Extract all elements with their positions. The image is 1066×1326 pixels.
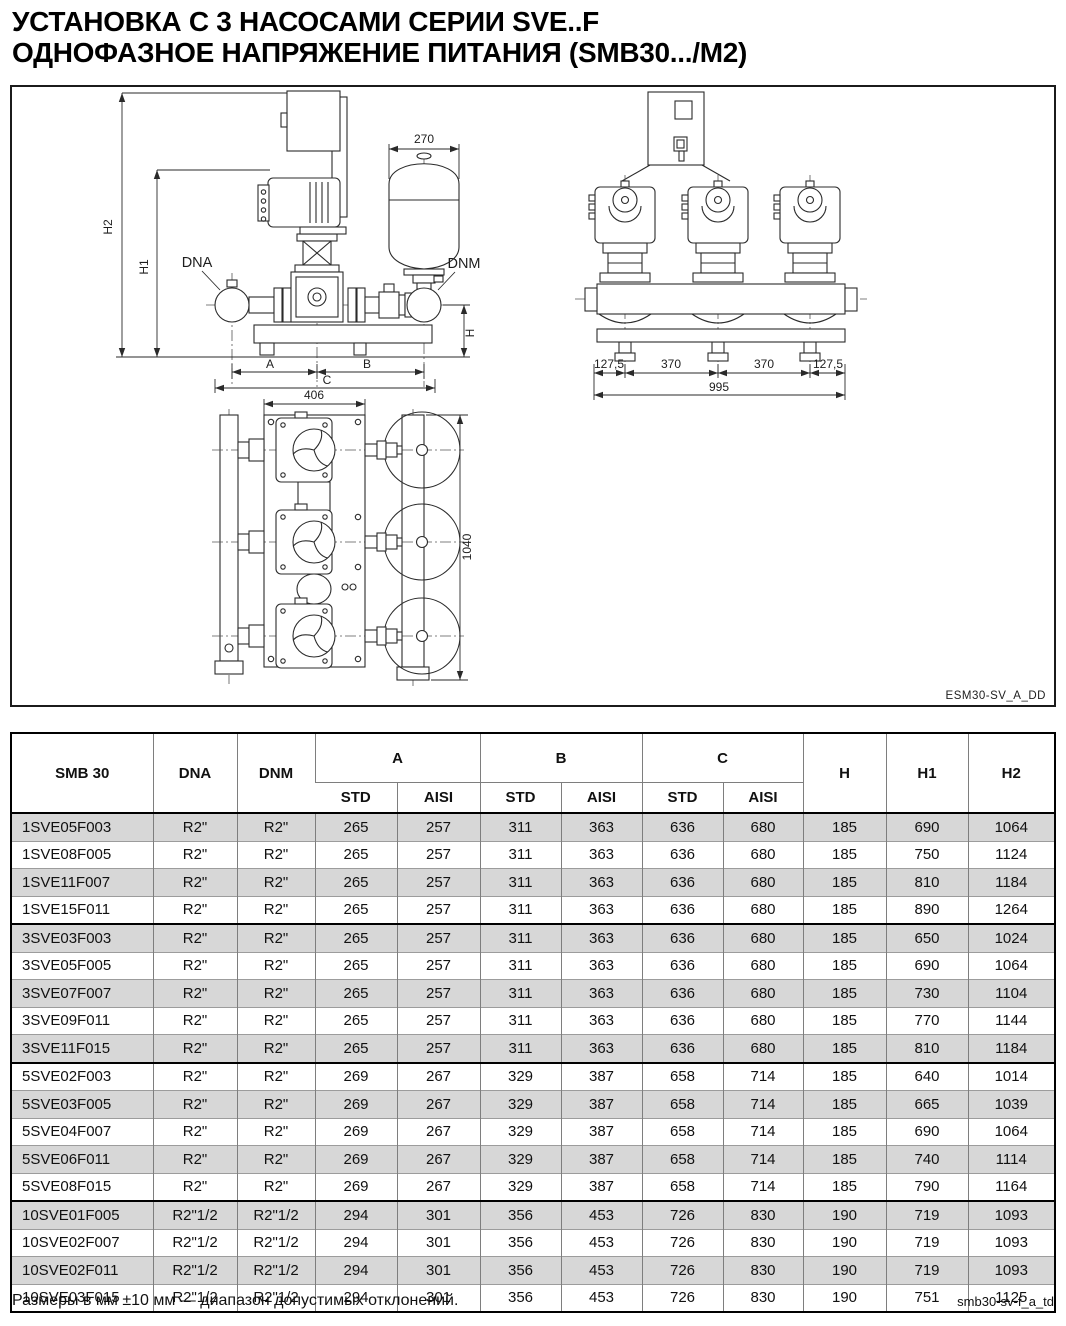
cell-c_aisi: 680 xyxy=(723,841,803,869)
cell-h: 185 xyxy=(803,841,886,869)
cell-a_std: 265 xyxy=(315,924,397,952)
cell-h2: 1264 xyxy=(968,896,1055,924)
cell-h2: 1104 xyxy=(968,980,1055,1008)
cell-h1: 719 xyxy=(886,1201,968,1229)
cell-dnm: R2" xyxy=(237,924,315,952)
cell-h: 185 xyxy=(803,952,886,980)
cell-c_std: 636 xyxy=(642,952,723,980)
table-row: 5SVE06F011R2"R2"269267329387658714185740… xyxy=(11,1146,1055,1174)
cell-b_aisi: 453 xyxy=(561,1201,642,1229)
cell-c_std: 658 xyxy=(642,1118,723,1146)
cell-h2: 1124 xyxy=(968,841,1055,869)
cell-h: 185 xyxy=(803,1146,886,1174)
cell-c_std: 636 xyxy=(642,813,723,841)
cell-h2: 1039 xyxy=(968,1091,1055,1119)
cell-h2: 1064 xyxy=(968,813,1055,841)
cell-a_std: 265 xyxy=(315,980,397,1008)
cell-c_std: 636 xyxy=(642,896,723,924)
cell-a_std: 265 xyxy=(315,896,397,924)
cell-h1: 665 xyxy=(886,1091,968,1119)
cell-dna: R2" xyxy=(153,980,237,1008)
cell-dna: R2"1/2 xyxy=(153,1257,237,1285)
cell-h1: 810 xyxy=(886,869,968,897)
cell-c_aisi: 714 xyxy=(723,1173,803,1201)
dim-406: 406 xyxy=(304,388,324,402)
dim-span2: 370 xyxy=(754,357,774,371)
cell-b_std: 311 xyxy=(480,924,561,952)
cell-c_aisi: 714 xyxy=(723,1063,803,1091)
cell-c_aisi: 680 xyxy=(723,1007,803,1035)
cell-a_aisi: 301 xyxy=(397,1201,480,1229)
cell-h1: 770 xyxy=(886,1007,968,1035)
cell-c_std: 636 xyxy=(642,869,723,897)
cell-dnm: R2" xyxy=(237,869,315,897)
cell-a_std: 265 xyxy=(315,869,397,897)
cell-c_aisi: 680 xyxy=(723,813,803,841)
cell-dnm: R2" xyxy=(237,1118,315,1146)
table-row: 5SVE04F007R2"R2"269267329387658714185690… xyxy=(11,1118,1055,1146)
dimension-table: SMB 30 DNA DNM A B C H H1 H2 STD AISI ST… xyxy=(10,732,1056,1313)
cell-a_std: 265 xyxy=(315,813,397,841)
cell-h1: 690 xyxy=(886,952,968,980)
cell-c_std: 726 xyxy=(642,1229,723,1257)
cell-h: 185 xyxy=(803,1118,886,1146)
dim-edge-right: 127,5 xyxy=(813,357,843,371)
cell-model: 10SVE02F007 xyxy=(11,1229,153,1257)
cell-c_std: 658 xyxy=(642,1063,723,1091)
cell-h: 185 xyxy=(803,869,886,897)
cell-dnm: R2"1/2 xyxy=(237,1229,315,1257)
cell-h1: 640 xyxy=(886,1063,968,1091)
cell-h: 185 xyxy=(803,813,886,841)
cell-b_aisi: 453 xyxy=(561,1257,642,1285)
cell-b_aisi: 363 xyxy=(561,980,642,1008)
cell-model: 3SVE09F011 xyxy=(11,1007,153,1035)
cell-dnm: R2" xyxy=(237,1146,315,1174)
cell-model: 5SVE03F005 xyxy=(11,1091,153,1119)
cell-c_aisi: 830 xyxy=(723,1229,803,1257)
cell-h1: 890 xyxy=(886,896,968,924)
table-row: 5SVE02F003R2"R2"269267329387658714185640… xyxy=(11,1063,1055,1091)
cell-h: 185 xyxy=(803,1007,886,1035)
cell-a_aisi: 267 xyxy=(397,1173,480,1201)
cell-dnm: R2" xyxy=(237,980,315,1008)
cell-b_std: 356 xyxy=(480,1257,561,1285)
cell-dnm: R2" xyxy=(237,841,315,869)
cell-c_aisi: 714 xyxy=(723,1091,803,1119)
cell-h: 190 xyxy=(803,1284,886,1312)
cell-model: 5SVE02F003 xyxy=(11,1063,153,1091)
cell-c_aisi: 830 xyxy=(723,1284,803,1312)
col-header-dna: DNA xyxy=(153,733,237,813)
cell-h2: 1114 xyxy=(968,1146,1055,1174)
cell-dnm: R2"1/2 xyxy=(237,1201,315,1229)
subheader-a-std: STD xyxy=(315,783,397,814)
subheader-b-aisi: AISI xyxy=(561,783,642,814)
cell-c_aisi: 680 xyxy=(723,980,803,1008)
cell-a_aisi: 267 xyxy=(397,1146,480,1174)
cell-dna: R2" xyxy=(153,841,237,869)
cell-a_std: 294 xyxy=(315,1201,397,1229)
cell-dna: R2" xyxy=(153,1146,237,1174)
cell-h1: 719 xyxy=(886,1257,968,1285)
cell-model: 3SVE03F003 xyxy=(11,924,153,952)
cell-c_std: 726 xyxy=(642,1257,723,1285)
cell-model: 3SVE05F005 xyxy=(11,952,153,980)
cell-model: 5SVE04F007 xyxy=(11,1118,153,1146)
cell-b_std: 329 xyxy=(480,1063,561,1091)
cell-b_aisi: 387 xyxy=(561,1173,642,1201)
drawing-code: ESM30-SV_A_DD xyxy=(946,690,1046,702)
cell-c_std: 658 xyxy=(642,1173,723,1201)
cell-model: 1SVE11F007 xyxy=(11,869,153,897)
cell-b_std: 311 xyxy=(480,841,561,869)
subheader-a-aisi: AISI xyxy=(397,783,480,814)
cell-c_aisi: 714 xyxy=(723,1146,803,1174)
subheader-c-aisi: AISI xyxy=(723,783,803,814)
cell-h: 185 xyxy=(803,980,886,1008)
cell-c_std: 636 xyxy=(642,1035,723,1063)
cell-model: 5SVE08F015 xyxy=(11,1173,153,1201)
cell-a_aisi: 257 xyxy=(397,980,480,1008)
cell-b_std: 311 xyxy=(480,869,561,897)
cell-h: 185 xyxy=(803,1035,886,1063)
cell-b_std: 311 xyxy=(480,1007,561,1035)
cell-b_aisi: 387 xyxy=(561,1118,642,1146)
table-body: 1SVE05F003R2"R2"265257311363636680185690… xyxy=(11,813,1055,1312)
cell-dna: R2" xyxy=(153,1007,237,1035)
page-title-line1: УСТАНОВКА С 3 НАСОСАМИ СЕРИИ SVE..F xyxy=(12,6,747,37)
cell-b_aisi: 363 xyxy=(561,813,642,841)
cell-model: 1SVE08F005 xyxy=(11,841,153,869)
cell-h: 190 xyxy=(803,1229,886,1257)
cell-h: 185 xyxy=(803,924,886,952)
cell-h2: 1144 xyxy=(968,1007,1055,1035)
table-row: 3SVE09F011R2"R2"265257311363636680185770… xyxy=(11,1007,1055,1035)
cell-h1: 730 xyxy=(886,980,968,1008)
cell-h: 185 xyxy=(803,1091,886,1119)
cell-a_aisi: 257 xyxy=(397,841,480,869)
cell-dna: R2" xyxy=(153,1118,237,1146)
col-header-dnm: DNM xyxy=(237,733,315,813)
cell-h: 185 xyxy=(803,1173,886,1201)
cell-h1: 650 xyxy=(886,924,968,952)
dim-270: 270 xyxy=(414,132,434,146)
cell-h2: 1184 xyxy=(968,869,1055,897)
cell-h1: 810 xyxy=(886,1035,968,1063)
cell-h2: 1093 xyxy=(968,1201,1055,1229)
cell-a_std: 265 xyxy=(315,1007,397,1035)
table-row: 1SVE05F003R2"R2"265257311363636680185690… xyxy=(11,813,1055,841)
cell-b_std: 311 xyxy=(480,896,561,924)
table-row: 3SVE07F007R2"R2"265257311363636680185730… xyxy=(11,980,1055,1008)
table-row: 10SVE02F007R2"1/2R2"1/229430135645372683… xyxy=(11,1229,1055,1257)
cell-a_aisi: 257 xyxy=(397,813,480,841)
cell-h: 185 xyxy=(803,1063,886,1091)
cell-dnm: R2" xyxy=(237,813,315,841)
cell-h1: 740 xyxy=(886,1146,968,1174)
cell-dnm: R2" xyxy=(237,1007,315,1035)
col-header-b: B xyxy=(480,733,642,783)
cell-model: 1SVE15F011 xyxy=(11,896,153,924)
cell-c_aisi: 714 xyxy=(723,1118,803,1146)
table-row: 3SVE03F003R2"R2"265257311363636680185650… xyxy=(11,924,1055,952)
cell-a_std: 269 xyxy=(315,1091,397,1119)
cell-model: 3SVE07F007 xyxy=(11,980,153,1008)
cell-c_aisi: 680 xyxy=(723,952,803,980)
cell-c_std: 726 xyxy=(642,1284,723,1312)
cell-a_aisi: 267 xyxy=(397,1091,480,1119)
cell-c_std: 658 xyxy=(642,1091,723,1119)
subheader-b-std: STD xyxy=(480,783,561,814)
plan-view: 406 1040 xyxy=(212,388,474,687)
cell-b_std: 311 xyxy=(480,952,561,980)
cell-a_std: 269 xyxy=(315,1118,397,1146)
cell-c_std: 726 xyxy=(642,1201,723,1229)
cell-b_std: 356 xyxy=(480,1201,561,1229)
cell-dnm: R2" xyxy=(237,1063,315,1091)
table-row: 10SVE01F005R2"1/2R2"1/229430135645372683… xyxy=(11,1201,1055,1229)
col-header-h: H xyxy=(803,733,886,813)
cell-a_std: 269 xyxy=(315,1063,397,1091)
cell-h: 190 xyxy=(803,1257,886,1285)
cell-a_aisi: 257 xyxy=(397,952,480,980)
cell-b_aisi: 363 xyxy=(561,869,642,897)
cell-dna: R2" xyxy=(153,1091,237,1119)
cell-model: 10SVE01F005 xyxy=(11,1201,153,1229)
cell-c_aisi: 830 xyxy=(723,1257,803,1285)
cell-b_aisi: 363 xyxy=(561,1035,642,1063)
cell-c_aisi: 680 xyxy=(723,896,803,924)
cell-h2: 1093 xyxy=(968,1229,1055,1257)
cell-c_aisi: 680 xyxy=(723,924,803,952)
cell-model: 1SVE05F003 xyxy=(11,813,153,841)
dim-1040: 1040 xyxy=(460,533,474,560)
table-row: 1SVE08F005R2"R2"265257311363636680185750… xyxy=(11,841,1055,869)
cell-dna: R2" xyxy=(153,813,237,841)
col-header-h2: H2 xyxy=(968,733,1055,813)
cell-h2: 1184 xyxy=(968,1035,1055,1063)
cell-a_std: 294 xyxy=(315,1257,397,1285)
cell-dna: R2" xyxy=(153,1173,237,1201)
table-row: 10SVE02F011R2"1/2R2"1/229430135645372683… xyxy=(11,1257,1055,1285)
dim-edge-left: 127,5 xyxy=(594,357,624,371)
cell-c_aisi: 830 xyxy=(723,1201,803,1229)
col-header-a: A xyxy=(315,733,480,783)
table-row: 3SVE05F005R2"R2"265257311363636680185690… xyxy=(11,952,1055,980)
cell-b_std: 329 xyxy=(480,1091,561,1119)
cell-c_aisi: 680 xyxy=(723,1035,803,1063)
technical-drawing: DNA DNM H2 H1 270 H A B C xyxy=(10,85,1056,707)
cell-model: 5SVE06F011 xyxy=(11,1146,153,1174)
cell-h1: 690 xyxy=(886,1118,968,1146)
footer-code: smb30-sv-f_a_td xyxy=(957,1294,1054,1309)
cell-dna: R2"1/2 xyxy=(153,1229,237,1257)
col-header-h1: H1 xyxy=(886,733,968,813)
dim-total: 995 xyxy=(709,380,729,394)
cell-a_aisi: 267 xyxy=(397,1118,480,1146)
cell-a_std: 269 xyxy=(315,1146,397,1174)
cell-dnm: R2" xyxy=(237,1035,315,1063)
cell-dnm: R2" xyxy=(237,952,315,980)
front-view: DNA DNM H2 H1 270 H A B C xyxy=(101,91,481,393)
cell-dna: R2" xyxy=(153,952,237,980)
cell-b_std: 311 xyxy=(480,813,561,841)
page-title-line2: ОДНОФАЗНОЕ НАПРЯЖЕНИЕ ПИТАНИЯ (SMB30.../… xyxy=(12,37,747,68)
cell-b_aisi: 363 xyxy=(561,924,642,952)
col-header-model: SMB 30 xyxy=(11,733,153,813)
cell-b_aisi: 387 xyxy=(561,1146,642,1174)
cell-b_std: 329 xyxy=(480,1146,561,1174)
cell-a_aisi: 257 xyxy=(397,869,480,897)
cell-h: 190 xyxy=(803,1201,886,1229)
drawing-svg: DNA DNM H2 H1 270 H A B C xyxy=(12,87,1054,705)
table-row: 5SVE08F015R2"R2"269267329387658714185790… xyxy=(11,1173,1055,1201)
cell-a_std: 265 xyxy=(315,1035,397,1063)
cell-a_aisi: 267 xyxy=(397,1063,480,1091)
dim-a: A xyxy=(266,357,274,371)
cell-b_std: 356 xyxy=(480,1284,561,1312)
table-row: 5SVE03F005R2"R2"269267329387658714185665… xyxy=(11,1091,1055,1119)
cell-c_std: 636 xyxy=(642,1007,723,1035)
dim-span1: 370 xyxy=(661,357,681,371)
cell-h1: 751 xyxy=(886,1284,968,1312)
cell-b_aisi: 387 xyxy=(561,1091,642,1119)
dim-c: C xyxy=(323,373,332,387)
cell-h: 185 xyxy=(803,896,886,924)
cell-h2: 1024 xyxy=(968,924,1055,952)
cell-dna: R2"1/2 xyxy=(153,1201,237,1229)
cell-model: 10SVE02F011 xyxy=(11,1257,153,1285)
cell-a_std: 294 xyxy=(315,1229,397,1257)
cell-dnm: R2"1/2 xyxy=(237,1257,315,1285)
cell-b_std: 329 xyxy=(480,1173,561,1201)
cell-h2: 1064 xyxy=(968,952,1055,980)
cell-b_aisi: 453 xyxy=(561,1284,642,1312)
cell-c_std: 636 xyxy=(642,980,723,1008)
cell-a_aisi: 301 xyxy=(397,1229,480,1257)
side-view: 127,5 370 370 127,5 995 xyxy=(575,92,867,400)
cell-dnm: R2" xyxy=(237,1091,315,1119)
cell-h2: 1014 xyxy=(968,1063,1055,1091)
cell-a_aisi: 301 xyxy=(397,1257,480,1285)
cell-h1: 750 xyxy=(886,841,968,869)
cell-b_aisi: 363 xyxy=(561,1007,642,1035)
cell-b_std: 311 xyxy=(480,980,561,1008)
datasheet-page: { "page": { "title_line1": "УСТАНОВКА С … xyxy=(0,0,1066,1326)
cell-dna: R2" xyxy=(153,1035,237,1063)
cell-dna: R2" xyxy=(153,896,237,924)
cell-b_std: 329 xyxy=(480,1118,561,1146)
cell-a_aisi: 257 xyxy=(397,1007,480,1035)
page-title: УСТАНОВКА С 3 НАСОСАМИ СЕРИИ SVE..F ОДНО… xyxy=(12,6,747,68)
cell-b_std: 311 xyxy=(480,1035,561,1063)
cell-a_aisi: 257 xyxy=(397,1035,480,1063)
table-row: 1SVE15F011R2"R2"265257311363636680185890… xyxy=(11,896,1055,924)
cell-h2: 1093 xyxy=(968,1257,1055,1285)
cell-c_std: 636 xyxy=(642,924,723,952)
cell-a_std: 265 xyxy=(315,841,397,869)
cell-a_std: 265 xyxy=(315,952,397,980)
table-row: 1SVE11F007R2"R2"265257311363636680185810… xyxy=(11,869,1055,897)
spec-table: SMB 30 DNA DNM A B C H H1 H2 STD AISI ST… xyxy=(10,732,1056,1313)
cell-dna: R2" xyxy=(153,869,237,897)
cell-dna: R2" xyxy=(153,1063,237,1091)
cell-h2: 1064 xyxy=(968,1118,1055,1146)
cell-dnm: R2" xyxy=(237,1173,315,1201)
cell-b_aisi: 363 xyxy=(561,952,642,980)
cell-h1: 790 xyxy=(886,1173,968,1201)
col-header-c: C xyxy=(642,733,803,783)
label-dnm: DNM xyxy=(447,256,480,272)
cell-b_aisi: 387 xyxy=(561,1063,642,1091)
dim-h1: H1 xyxy=(137,259,151,275)
label-dna: DNA xyxy=(182,255,213,271)
cell-dnm: R2" xyxy=(237,896,315,924)
cell-h1: 719 xyxy=(886,1229,968,1257)
cell-h2: 1164 xyxy=(968,1173,1055,1201)
cell-model: 3SVE11F015 xyxy=(11,1035,153,1063)
cell-b_aisi: 453 xyxy=(561,1229,642,1257)
subheader-c-std: STD xyxy=(642,783,723,814)
dim-b: B xyxy=(363,357,371,371)
dim-h: H xyxy=(463,329,477,338)
table-row: 3SVE11F015R2"R2"265257311363636680185810… xyxy=(11,1035,1055,1063)
footer-note: Размеры в мм ±10 мм — диапазон допустимы… xyxy=(12,1292,458,1310)
cell-b_std: 356 xyxy=(480,1229,561,1257)
dim-h2: H2 xyxy=(101,219,115,235)
cell-dna: R2" xyxy=(153,924,237,952)
cell-h1: 690 xyxy=(886,813,968,841)
cell-c_std: 658 xyxy=(642,1146,723,1174)
cell-a_aisi: 257 xyxy=(397,896,480,924)
cell-c_aisi: 680 xyxy=(723,869,803,897)
cell-a_std: 269 xyxy=(315,1173,397,1201)
cell-b_aisi: 363 xyxy=(561,841,642,869)
cell-b_aisi: 363 xyxy=(561,896,642,924)
cell-a_aisi: 257 xyxy=(397,924,480,952)
cell-c_std: 636 xyxy=(642,841,723,869)
